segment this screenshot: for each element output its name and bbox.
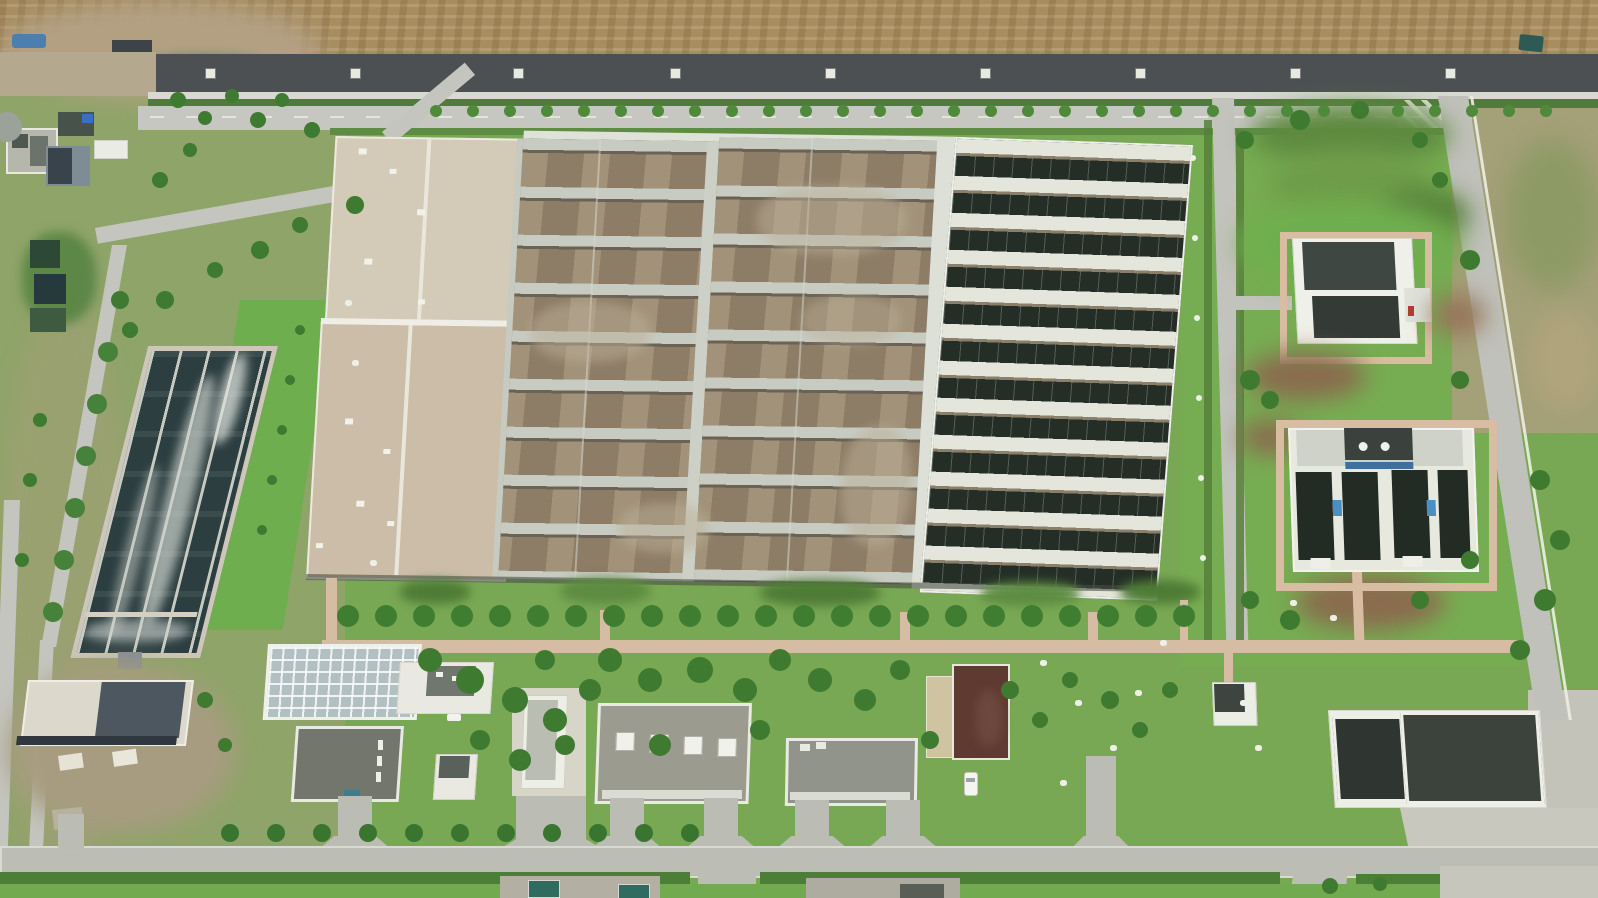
roof-unit-2 [389,169,396,174]
filter-cell-2 [1342,472,1381,560]
wetland-pool-3 [30,308,66,332]
ground-pad [1075,700,1082,706]
tree [808,668,832,692]
south-road-tree [681,824,699,842]
ground-pad [1330,615,1337,621]
tree [1101,691,1119,709]
tree [890,660,910,680]
street-tree [652,105,664,117]
tree [579,679,601,701]
street-tree [1133,105,1145,117]
ground-pad [1060,780,1067,786]
lab-skylight-1 [615,732,635,751]
shrub-band-south-2 [560,578,650,604]
main-pink-path [322,640,1520,653]
substation-canopy [1404,288,1432,322]
avenue-tree [1021,605,1043,627]
tree [1001,681,1019,699]
substation-roof-upper [1302,242,1397,290]
tree [502,687,528,713]
filter-blue-strip [1345,462,1413,469]
dewatering-roof-east [1400,712,1544,804]
foam-patch-4 [618,502,711,553]
tree [197,692,213,708]
right-apron-bottom [1440,866,1598,898]
substation-roof-lower [1312,296,1400,338]
avenue-tree [755,605,777,627]
ground-pad [1290,600,1297,606]
south-road-tree [267,824,285,842]
kiosk-roof [1214,684,1245,712]
white-car-windshield [966,778,975,782]
south-road-tree [589,824,607,842]
roof-unit-5 [418,299,425,304]
sludge-building [20,680,192,744]
manhole-cover [1135,68,1146,79]
avenue-tree [489,605,511,627]
south-road-tree [359,824,377,842]
tree [535,650,555,670]
street-tree [689,105,701,117]
dosing-window-3 [376,772,381,782]
street-tree [1503,105,1515,117]
dosing-window-1 [378,740,383,750]
street-tree [874,105,886,117]
tree [275,93,289,107]
pump-building-roof [48,148,72,184]
tree [295,325,305,335]
avenue-tree [641,605,663,627]
tree [346,196,364,214]
roof-unit-3 [417,209,425,215]
pink-path-v1 [326,578,337,644]
street-tree [1059,105,1071,117]
annex-unit-1 [436,672,443,677]
manhole-cover [1290,68,1301,79]
avenue-tree [945,605,967,627]
avenue-tree [527,605,549,627]
street-tree [837,105,849,117]
south-road-tree [451,824,469,842]
street-tree [763,105,775,117]
avenue-tree [337,605,359,627]
avenue-tree [831,605,853,627]
filter-blue-unit-1 [1333,500,1343,516]
tree [33,413,47,427]
wetland-pool-1 [30,240,60,268]
tree [1510,640,1530,660]
channel-road-tree [54,550,74,570]
tree [111,291,129,309]
avenue-tree [869,605,891,627]
office-unit-2 [816,742,826,749]
ground-pad [1255,745,1262,751]
street-tree [615,105,627,117]
parked-truck [1518,34,1544,52]
south-road-tree [405,824,423,842]
ground-pad [1240,700,1247,706]
tree [769,649,791,671]
filter-cell-4 [1437,470,1470,558]
white-canopy [94,140,128,159]
tree [733,678,757,702]
manhole-cover [825,68,836,79]
ground-pad [352,360,359,366]
small-white-building-roof [438,756,470,778]
filter-tab-1 [1311,558,1331,569]
tree [304,122,320,138]
ground-pad [1110,745,1117,751]
tree [267,475,277,485]
street-tree [1096,105,1108,117]
ground-pad [370,560,377,566]
filter-cell-3 [1391,470,1430,558]
tree [292,217,308,233]
street-tree [1170,105,1182,117]
roof-unit-9 [316,543,323,548]
roof-unit-1 [358,148,366,154]
manhole-cover [205,68,216,79]
tree [277,425,287,435]
tree [1132,722,1148,738]
filter-facility [1288,428,1475,570]
shrub-band-south-5 [1120,580,1200,604]
tree [1290,110,1310,130]
street-tree [911,105,923,117]
asphalt-road-top [150,54,1598,94]
avenue-tree [1097,605,1119,627]
roof-unit-4 [364,259,372,265]
tree [225,89,239,103]
street-tree [430,105,442,117]
tree [1032,712,1048,728]
tree [156,291,174,309]
avenue-tree [793,605,815,627]
avenue-tree [451,605,473,627]
office-unit-1 [800,744,810,751]
dosing-window-2 [377,756,382,766]
tree [1162,682,1178,698]
manhole-cover [350,68,361,79]
tree [687,657,713,683]
tree [470,730,490,750]
teal-skylight-1 [528,880,560,898]
tree [1261,391,1279,409]
tree [1241,591,1259,609]
tree [1461,551,1479,569]
bottom-pad-block [900,884,944,898]
tree [1062,672,1078,688]
tree [1373,877,1387,891]
foam-patch-1 [529,301,652,363]
tree [509,749,531,771]
south-road-tree [543,824,561,842]
lawn-bottom-edge [0,884,1598,898]
tree [207,262,223,278]
office-south-wall [790,792,910,800]
filter-head-vent-2 [1380,442,1389,451]
avenue-tree [1059,605,1081,627]
tree [555,735,575,755]
street-tree [1207,105,1219,117]
blower-roof-lower [306,322,521,582]
filter-blue-unit-2 [1427,500,1437,516]
tree [257,525,267,535]
tree [251,241,269,259]
east-lawn-dot [1192,235,1198,241]
tree [170,92,186,108]
channel-road-tree [98,342,118,362]
street-tree [1244,105,1256,117]
car-by-annex [447,714,461,721]
inner-road-dash [150,116,1450,118]
roof-unit-7 [383,449,390,454]
wetland-pool-2 [34,274,66,304]
south-road-tree [635,824,653,842]
tree [456,666,484,694]
tree [1280,610,1300,630]
manhole-cover [670,68,681,79]
ground-pad [1135,690,1142,696]
tree [1534,589,1556,611]
tree [1432,172,1448,188]
tree [854,689,876,711]
dewatering-roof-west [1332,716,1408,802]
shrub-band-south-1 [400,580,470,604]
south-road-tree [221,824,239,842]
teal-skylight-2 [618,884,650,898]
street-tree [1540,105,1552,117]
manhole-cover [980,68,991,79]
channel-road-tree [76,446,96,466]
tree [198,111,212,125]
east-lawn-dot [1196,395,1202,401]
tarp-blue [12,34,46,48]
treatment-complex [306,128,1191,592]
south-road-tree [313,824,331,842]
street-tree [1466,105,1478,117]
tree [649,734,671,756]
tree [750,720,770,740]
blue-equipment-item [82,114,93,123]
substation-red-unit [1408,306,1414,316]
street-tree [1429,105,1441,117]
avenue-tree [565,605,587,627]
east-lawn-dot [1190,155,1196,161]
tree [1236,131,1254,149]
avenue-tree [717,605,739,627]
tree [183,143,197,157]
left-road-connector [58,814,84,850]
roof-unit-6 [345,418,353,424]
street-tree [985,105,997,117]
street-tree [1318,105,1330,117]
lab-skylight-4 [717,738,737,757]
east-lawn-dot [1198,475,1204,481]
avenue-tree [1135,605,1157,627]
shrub-band-south-4 [980,582,1080,606]
avenue-tree [679,605,701,627]
tree [1240,370,1260,390]
sludge-roof-dark [95,682,186,738]
channel-road-tree [87,394,107,414]
scrub-blotch-2 [1530,310,1598,410]
brown-roof-patch [976,690,1002,746]
tree [1411,591,1429,609]
mulch-bed-3 [1430,295,1485,335]
tree [1322,878,1338,894]
tree [1460,250,1480,270]
avenue-tree [413,605,435,627]
street-tree [578,105,590,117]
street-tree [726,105,738,117]
ground-pad [1040,660,1047,666]
street-tree [1022,105,1034,117]
street-tree [1392,105,1404,117]
street-tree [948,105,960,117]
white-car [964,772,978,796]
ground-pad [1160,640,1167,646]
tree [1412,132,1428,148]
east-lawn-dot [1200,555,1206,561]
channel-cross-wall [84,612,197,617]
avenue-tree [983,605,1005,627]
filter-tab-2 [1402,556,1422,567]
lab-skylight-3 [683,736,703,755]
street-tree [504,105,516,117]
tree [1351,101,1369,119]
avenue-tree [375,605,397,627]
filter-head-vent-1 [1358,442,1367,451]
filter-cell-1 [1296,472,1335,560]
tree [285,375,295,385]
street-tree [541,105,553,117]
tree [152,172,168,188]
tree [543,708,567,732]
road-shoulder-left [0,52,156,96]
tree [418,648,442,672]
shrub-band-south-3 [760,580,880,606]
street-tree [800,105,812,117]
aerial-photo-wastewater-plant: Aerial drone photograph of a wastewater … [0,0,1598,898]
tree [598,648,622,672]
tree [23,473,37,487]
tree [1550,530,1570,550]
road-shrub-west [1204,120,1212,640]
east-lawn-dot [1194,315,1200,321]
clarifier-array [920,137,1193,601]
scrub-blotch-1 [1505,140,1598,290]
filter-head-roof [1344,428,1413,460]
south-road-tree [497,824,515,842]
tree [1451,371,1469,389]
tree [250,112,266,128]
foam-patch-5 [800,295,903,346]
roof-unit-8 [356,501,364,507]
tree [1530,470,1550,490]
roof-unit-10 [387,521,394,526]
tree [218,738,232,752]
manhole-cover [513,68,524,79]
channel-road-tree [65,498,85,518]
ground-pad [345,300,352,306]
sludge-wall [16,736,177,745]
channel-road-tree [43,602,63,622]
foam-patch-2 [755,184,909,256]
street-tree [467,105,479,117]
avenue-tree [1173,605,1195,627]
tree [15,553,29,567]
avenue-tree [603,605,625,627]
tree [638,668,662,692]
tree [921,731,939,749]
avenue-tree [907,605,929,627]
manhole-cover [1445,68,1456,79]
tree [122,322,138,338]
